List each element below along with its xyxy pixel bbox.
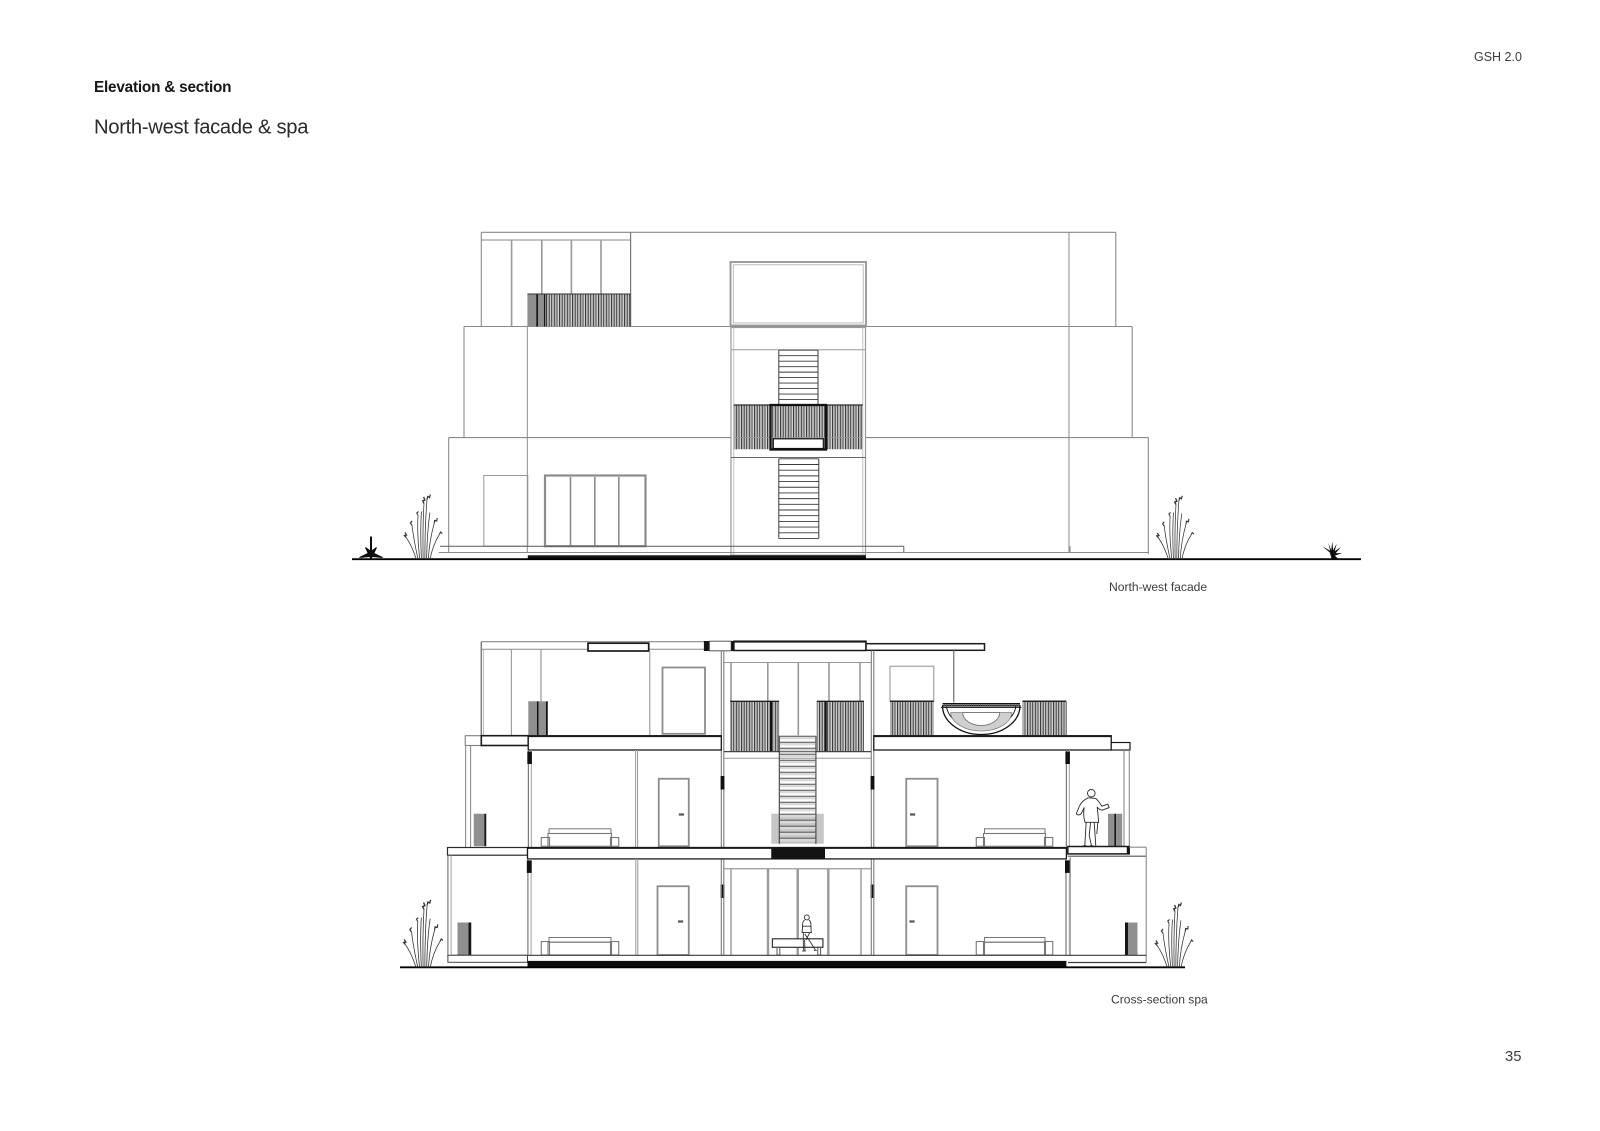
svg-text:North-west facade: North-west facade <box>1109 580 1207 594</box>
svg-text:Elevation & section: Elevation & section <box>94 79 231 96</box>
svg-text:35: 35 <box>1505 1049 1521 1065</box>
svg-text:Cross-section spa: Cross-section spa <box>1111 993 1208 1007</box>
svg-text:GSH 2.0: GSH 2.0 <box>1474 50 1522 64</box>
svg-text:North-west facade & spa: North-west facade & spa <box>94 117 309 139</box>
